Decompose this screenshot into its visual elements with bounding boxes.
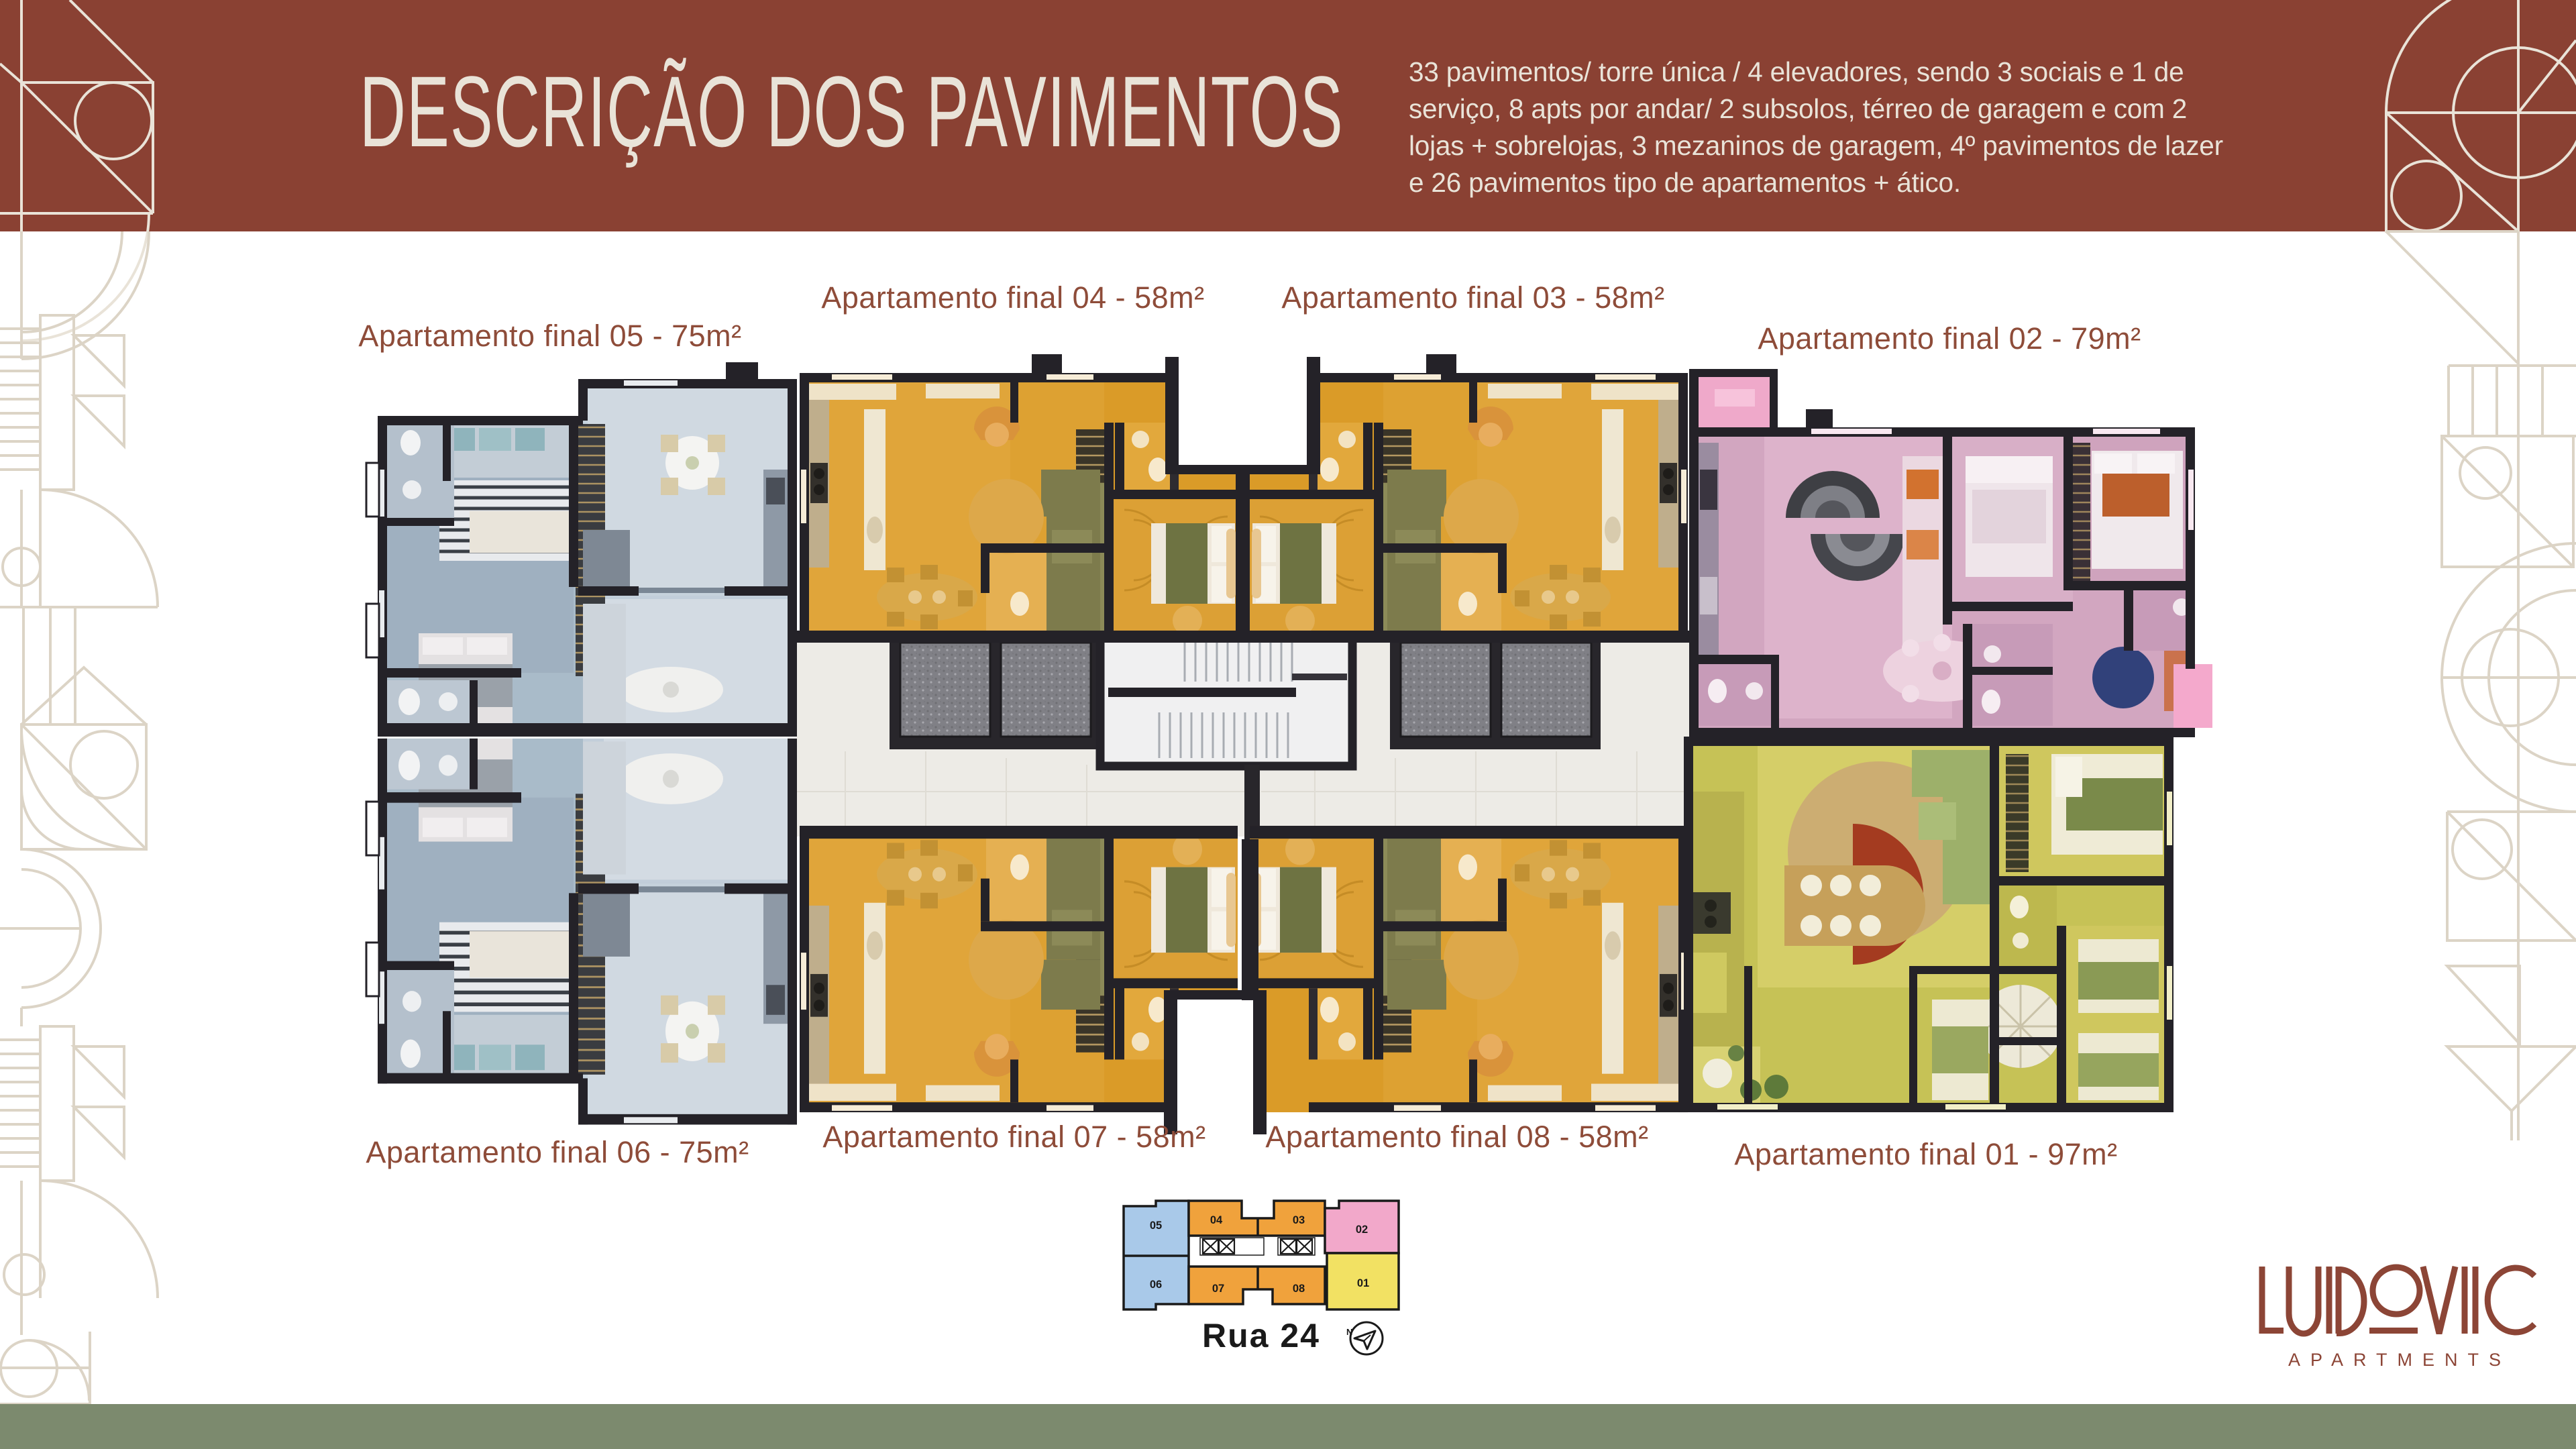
svg-text:APARTMENTS: APARTMENTS <box>2288 1350 2511 1370</box>
svg-text:33 pavimentos/ torre única / 4: 33 pavimentos/ torre única / 4 elevadore… <box>1409 56 2184 87</box>
svg-text:Apartamento final 08 - 58m²: Apartamento final 08 - 58m² <box>1265 1120 1648 1154</box>
svg-text:Apartamento final 01 - 97m²: Apartamento final 01 - 97m² <box>1734 1137 2117 1171</box>
svg-text:Apartamento final 07 - 58m²: Apartamento final 07 - 58m² <box>822 1120 1205 1154</box>
svg-text:Apartamento final 03 - 58m²: Apartamento final 03 - 58m² <box>1281 280 1664 315</box>
svg-text:06: 06 <box>1150 1279 1162 1291</box>
svg-text:07: 07 <box>1212 1283 1224 1295</box>
svg-text:DESCRIÇÃO DOS PAVIMENTOS: DESCRIÇÃO DOS PAVIMENTOS <box>360 55 1344 168</box>
svg-text:Apartamento final 05 - 75m²: Apartamento final 05 - 75m² <box>358 319 741 353</box>
svg-text:04: 04 <box>1210 1214 1223 1226</box>
svg-text:e 26 pavimentos tipo de aparta: e 26 pavimentos tipo de apartamentos + á… <box>1409 167 1961 198</box>
svg-text:N: N <box>1346 1327 1352 1337</box>
svg-text:02: 02 <box>1356 1224 1368 1236</box>
svg-text:01: 01 <box>1357 1277 1369 1289</box>
svg-text:Apartamento final 02 - 79m²: Apartamento final 02 - 79m² <box>1758 321 2141 356</box>
svg-text:Rua 24: Rua 24 <box>1202 1317 1320 1354</box>
svg-text:Apartamento final 06 - 75m²: Apartamento final 06 - 75m² <box>366 1135 749 1169</box>
svg-text:lojas + sobrelojas, 3 mezanino: lojas + sobrelojas, 3 mezaninos de garag… <box>1409 130 2223 161</box>
svg-text:Apartamento final 04 - 58m²: Apartamento final 04 - 58m² <box>821 280 1204 315</box>
svg-text:serviço, 8 apts por andar/ 2 s: serviço, 8 apts por andar/ 2 subsolos, t… <box>1409 93 2187 124</box>
svg-text:08: 08 <box>1293 1283 1305 1295</box>
svg-text:03: 03 <box>1293 1214 1305 1226</box>
svg-text:05: 05 <box>1150 1220 1162 1232</box>
